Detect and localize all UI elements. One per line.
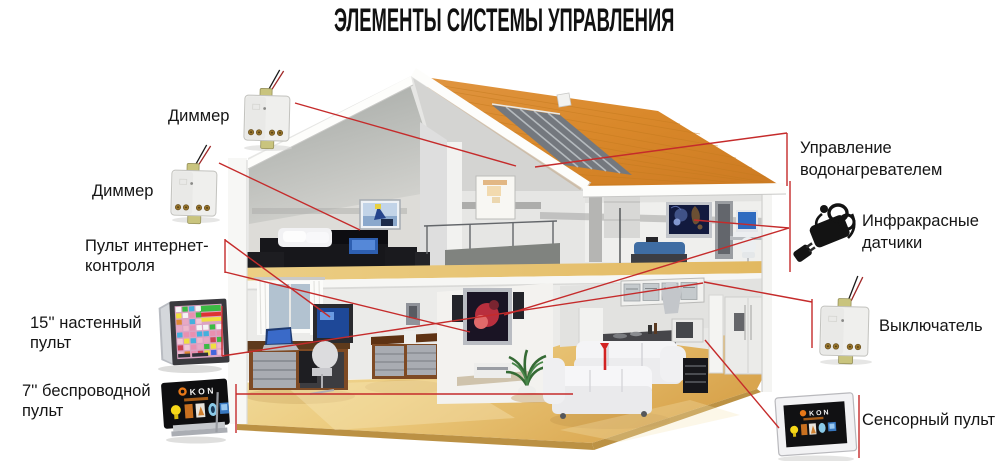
svg-text:KON: KON (189, 385, 216, 397)
